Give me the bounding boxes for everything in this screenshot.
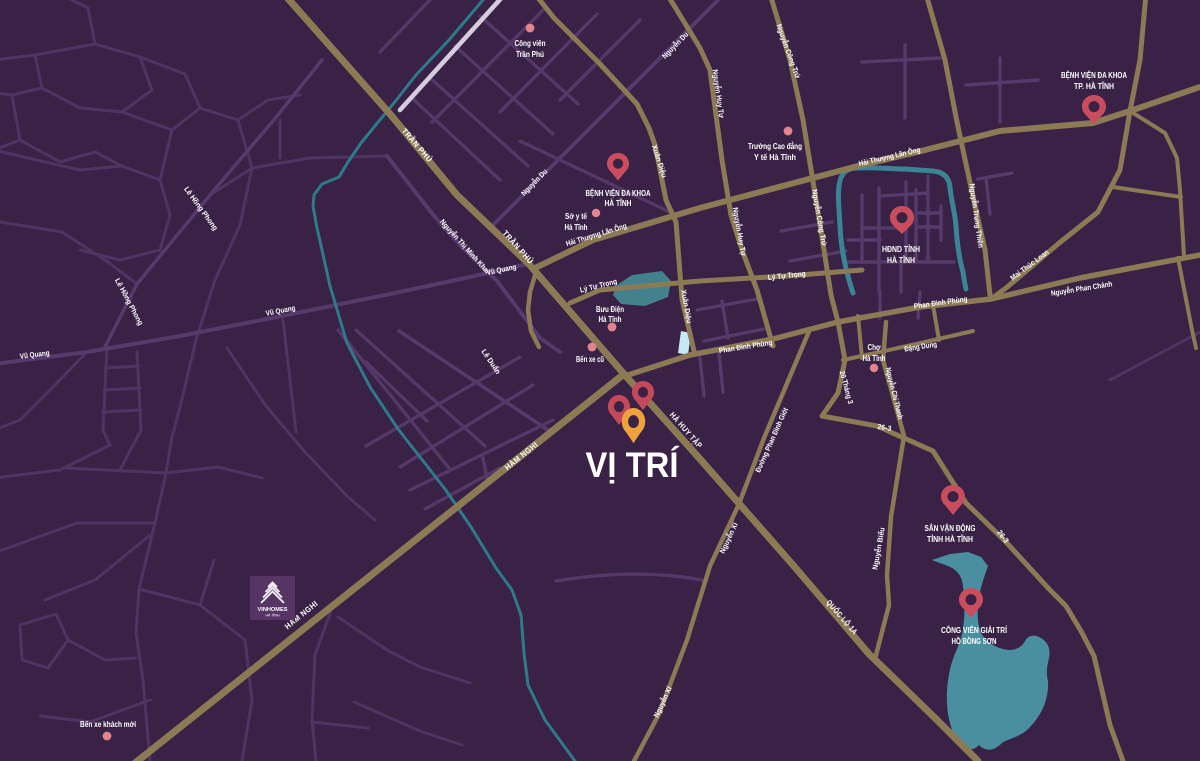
svg-text:CÔNG VIÊN GIẢI TRÍ: CÔNG VIÊN GIẢI TRÍ [941,624,1007,635]
svg-text:Y tế Hà Tĩnh: Y tế Hà Tĩnh [754,153,796,162]
svg-text:TP. HÀ TĨNH: TP. HÀ TĨNH [1074,81,1114,91]
svg-text:Chợ: Chợ [868,343,881,352]
svg-text:VINHOMES: VINHOMES [258,607,289,613]
svg-text:Sở y tế: Sở y tế [565,212,587,221]
svg-text:SÂN VẬN ĐỘNG: SÂN VẬN ĐỘNG [925,522,976,533]
svg-text:TỈNH HÀ TĨNH: TỈNH HÀ TĨNH [927,533,973,544]
svg-text:HĐND TỈNH: HĐND TỈNH [882,243,920,254]
svg-text:HÀ TĨNH: HÀ TĨNH [266,613,281,618]
svg-text:VỊ TRÍ: VỊ TRÍ [586,445,680,485]
svg-text:HÀ TĨNH: HÀ TĨNH [887,255,915,265]
svg-text:HÀ TĨNH: HÀ TĨNH [605,198,632,208]
svg-text:Hà Tĩnh: Hà Tĩnh [599,315,622,324]
svg-text:Bến xe khách mới: Bến xe khách mới [80,720,136,729]
svg-text:Bến xe cũ: Bến xe cũ [576,355,604,364]
svg-text:Hà Tĩnh: Hà Tĩnh [863,354,886,363]
svg-text:Trần Phú: Trần Phú [516,50,544,59]
svg-text:BỆNH VIỆN ĐA KHOA: BỆNH VIỆN ĐA KHOA [586,187,651,198]
svg-text:Hà Tĩnh: Hà Tĩnh [565,223,588,232]
svg-text:Công viên: Công viên [515,39,546,48]
svg-text:Bưu Điện: Bưu Điện [596,305,624,314]
svg-text:BỆNH VIỆN ĐA KHOA: BỆNH VIỆN ĐA KHOA [1061,69,1127,80]
svg-text:HỒ BỒNG SƠN: HỒ BỒNG SƠN [952,635,997,646]
svg-text:Trường Cao đẳng: Trường Cao đẳng [748,140,802,151]
